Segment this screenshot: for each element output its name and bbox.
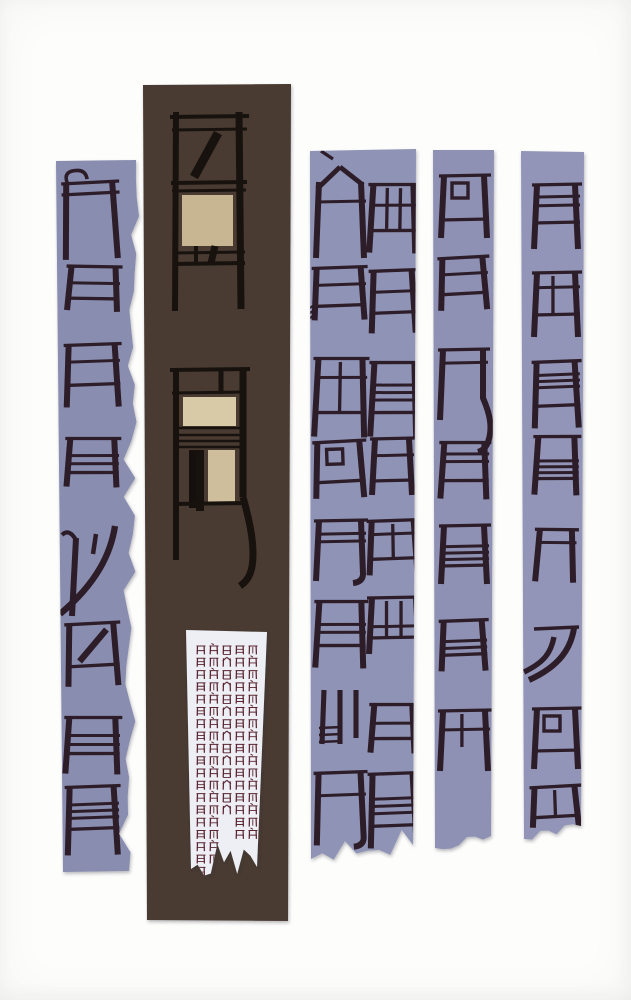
artwork-canvas [0,0,631,1000]
artwork-photo [0,0,631,1000]
